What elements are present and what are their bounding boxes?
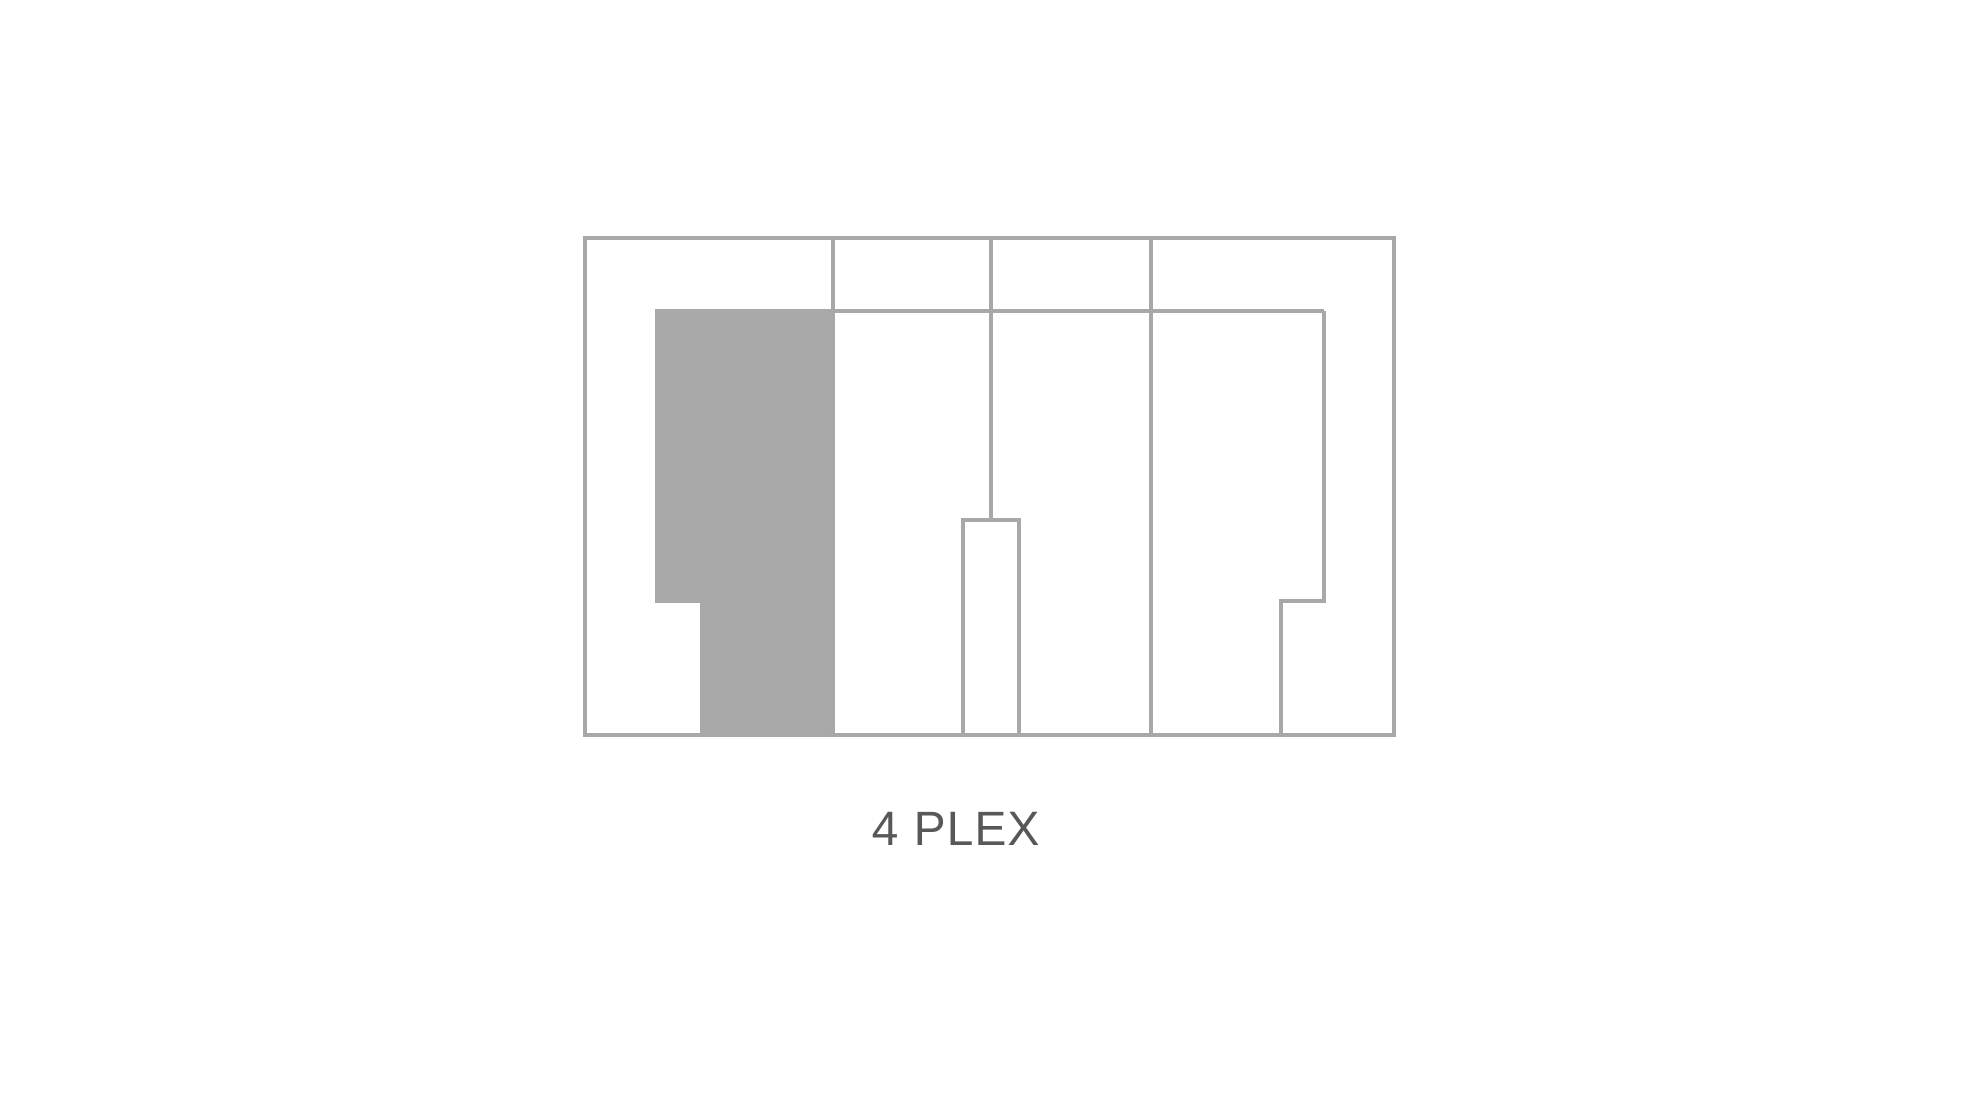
- canvas: 4 PLEX: [0, 0, 1980, 1115]
- plan-label: 4 PLEX: [872, 803, 1041, 856]
- right-unit-step-boundary: [1281, 311, 1324, 735]
- center-entry-inset-outline: [963, 520, 1019, 735]
- fourplex-floorplan: 4 PLEX: [0, 0, 1980, 1115]
- selected-unit-shape[interactable]: [655, 309, 835, 737]
